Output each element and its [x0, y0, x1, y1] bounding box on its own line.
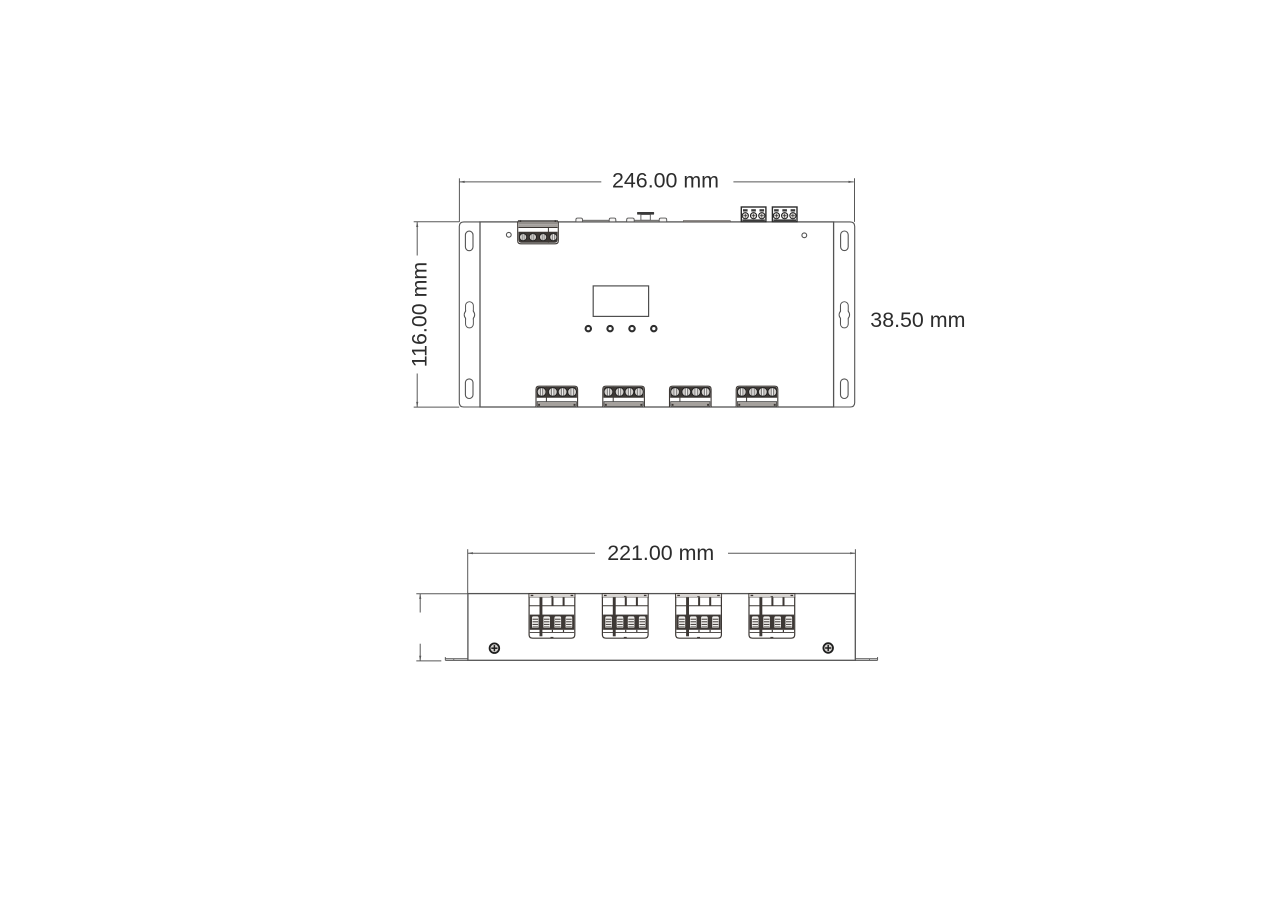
svg-text:116.00 mm: 116.00 mm [407, 262, 431, 367]
svg-text:38.50 mm: 38.50 mm [870, 308, 965, 332]
svg-text:221.00 mm: 221.00 mm [607, 541, 714, 565]
svg-text:246.00 mm: 246.00 mm [612, 169, 719, 193]
